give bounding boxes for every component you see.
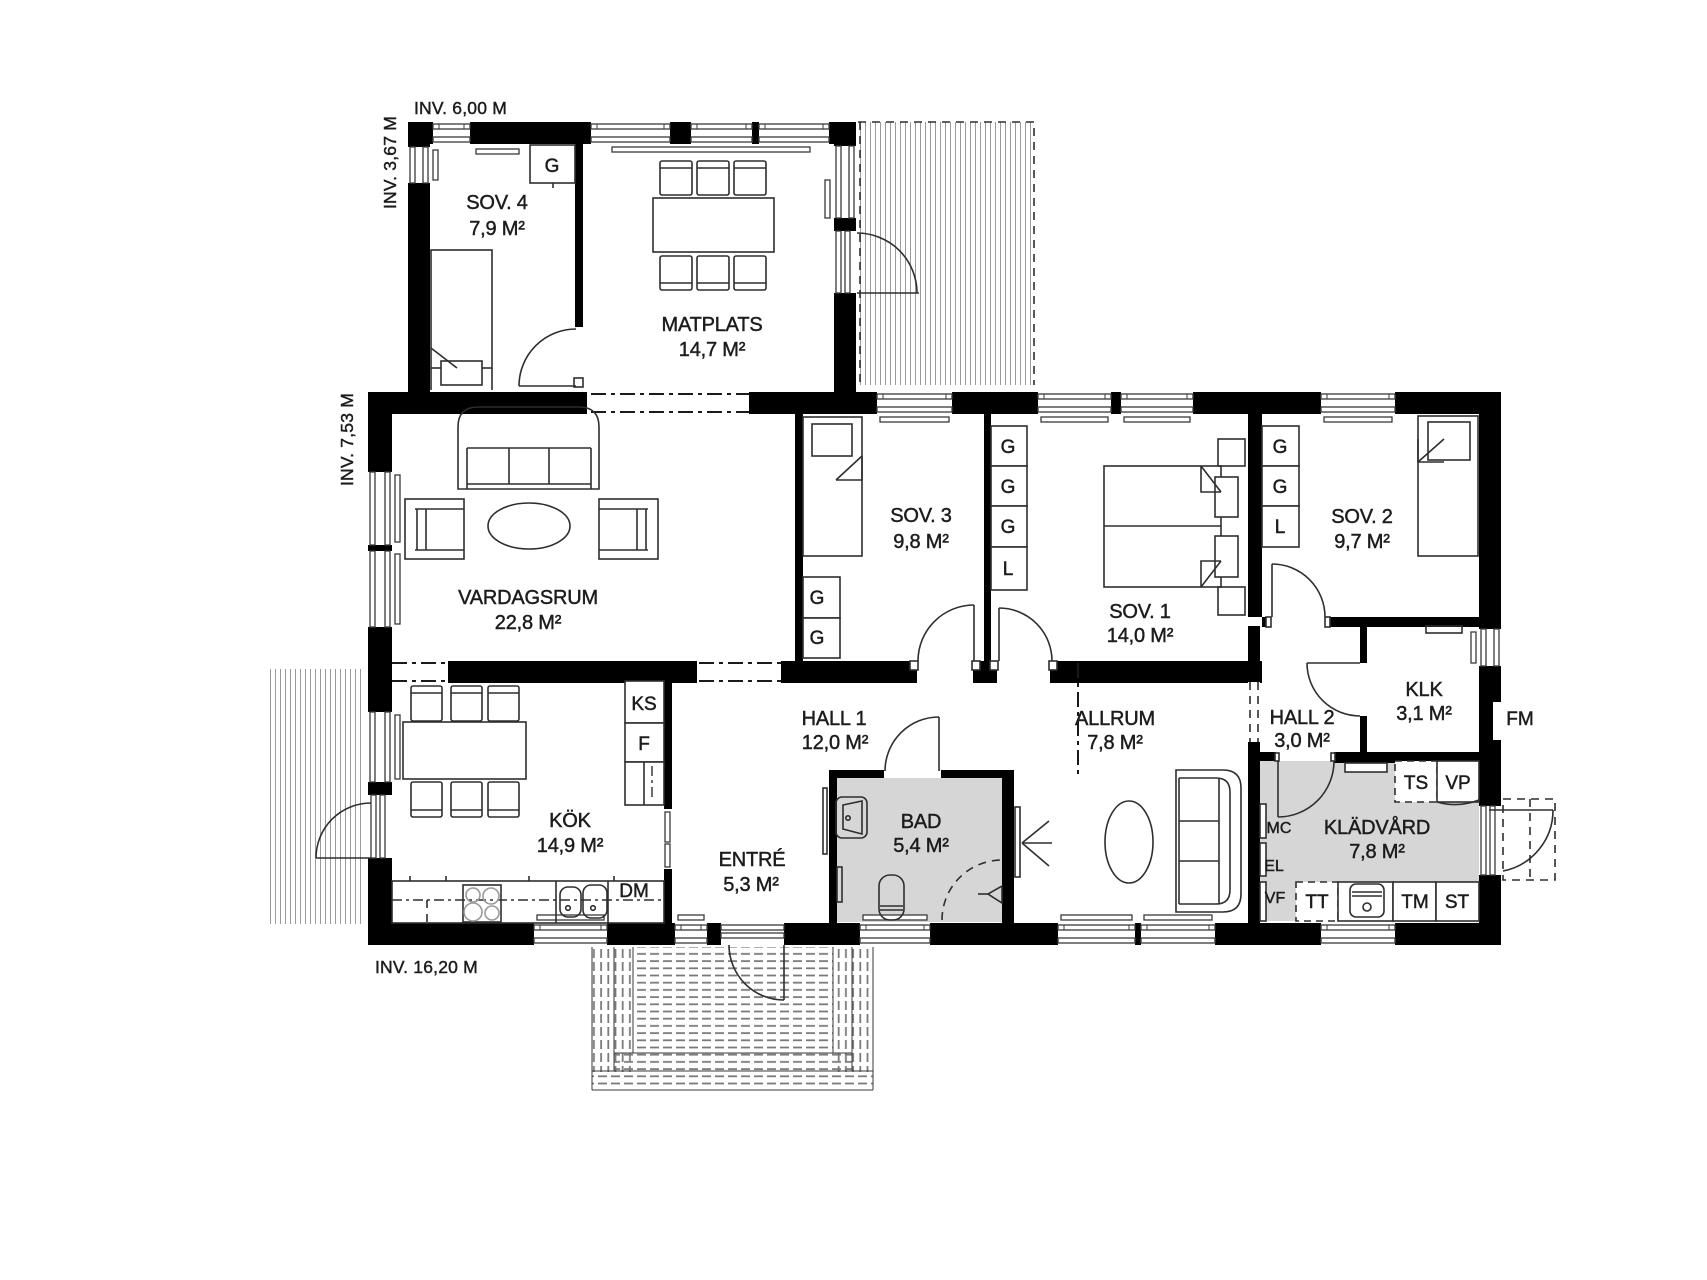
svg-text:SOV. 3: SOV. 3 bbox=[890, 505, 952, 527]
svg-text:INV. 16,20 M: INV. 16,20 M bbox=[375, 957, 478, 977]
svg-text:3,1 M²: 3,1 M² bbox=[1396, 703, 1452, 725]
svg-text:7,8 M²: 7,8 M² bbox=[1087, 732, 1143, 754]
svg-text:INV. 7,53 M: INV. 7,53 M bbox=[337, 393, 357, 486]
svg-text:SOV. 1: SOV. 1 bbox=[1109, 601, 1171, 623]
svg-text:G: G bbox=[1001, 437, 1016, 458]
svg-text:SOV. 2: SOV. 2 bbox=[1331, 506, 1393, 528]
svg-text:EL: EL bbox=[1264, 858, 1284, 875]
svg-text:KLÄDVÅRD: KLÄDVÅRD bbox=[1324, 816, 1430, 839]
svg-text:L: L bbox=[1275, 517, 1286, 538]
svg-text:VF: VF bbox=[1265, 890, 1286, 907]
svg-text:VP: VP bbox=[1445, 773, 1470, 794]
svg-text:14,7 M²: 14,7 M² bbox=[679, 339, 746, 361]
svg-text:ST: ST bbox=[1445, 892, 1470, 913]
svg-text:DM: DM bbox=[619, 881, 649, 902]
svg-text:3,0 M²: 3,0 M² bbox=[1274, 730, 1330, 752]
svg-text:5,4 M²: 5,4 M² bbox=[893, 835, 949, 857]
svg-text:HALL 1: HALL 1 bbox=[802, 708, 867, 730]
svg-text:MATPLATS: MATPLATS bbox=[661, 314, 762, 336]
svg-text:5,3 M²: 5,3 M² bbox=[723, 874, 779, 896]
svg-text:G: G bbox=[810, 628, 825, 649]
svg-text:ALLRUM: ALLRUM bbox=[1075, 708, 1155, 730]
svg-text:G: G bbox=[545, 156, 560, 177]
svg-text:7,9 M²: 7,9 M² bbox=[469, 218, 525, 240]
svg-text:INV. 3,67 M: INV. 3,67 M bbox=[380, 116, 400, 209]
svg-text:INV. 6,00 M: INV. 6,00 M bbox=[414, 98, 507, 118]
svg-text:VARDAGSRUM: VARDAGSRUM bbox=[458, 587, 598, 609]
svg-text:G: G bbox=[1001, 477, 1016, 498]
svg-text:14,0 M²: 14,0 M² bbox=[1107, 625, 1174, 647]
svg-text:HALL 2: HALL 2 bbox=[1270, 707, 1335, 729]
svg-text:9,7 M²: 9,7 M² bbox=[1334, 531, 1390, 553]
svg-text:MC: MC bbox=[1267, 820, 1292, 837]
svg-text:F: F bbox=[638, 734, 650, 755]
svg-text:G: G bbox=[1273, 437, 1288, 458]
svg-text:BAD: BAD bbox=[901, 811, 942, 833]
svg-text:G: G bbox=[1273, 477, 1288, 498]
svg-text:TS: TS bbox=[1404, 773, 1428, 794]
svg-text:G: G bbox=[810, 588, 825, 609]
svg-text:ENTRÉ: ENTRÉ bbox=[719, 848, 786, 871]
svg-text:TM: TM bbox=[1401, 892, 1428, 913]
svg-text:KS: KS bbox=[631, 694, 656, 715]
svg-text:L: L bbox=[1003, 559, 1014, 580]
svg-text:14,9 M²: 14,9 M² bbox=[537, 835, 604, 857]
svg-text:FM: FM bbox=[1506, 709, 1533, 730]
svg-text:12,0 M²: 12,0 M² bbox=[802, 732, 869, 754]
svg-text:KÖK: KÖK bbox=[549, 810, 591, 832]
svg-text:SOV. 4: SOV. 4 bbox=[466, 192, 528, 214]
svg-text:7,8 M²: 7,8 M² bbox=[1349, 841, 1405, 863]
svg-text:KLK: KLK bbox=[1405, 679, 1443, 701]
svg-text:G: G bbox=[1001, 517, 1016, 538]
svg-text:TT: TT bbox=[1305, 892, 1329, 913]
svg-text:22,8 M²: 22,8 M² bbox=[495, 612, 562, 634]
svg-text:9,8 M²: 9,8 M² bbox=[893, 531, 949, 553]
